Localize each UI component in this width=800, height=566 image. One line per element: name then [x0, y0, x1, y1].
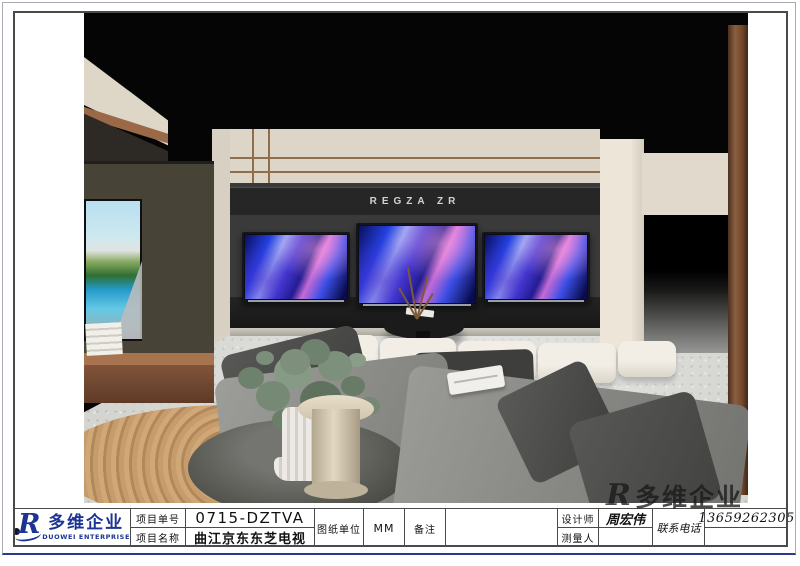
project-name-label: 项目名称: [131, 528, 185, 547]
surveyor-label: 测量人: [558, 528, 598, 547]
company-logo: R 多维企业 DUOWEI ENTERPRISE: [13, 509, 130, 547]
phone-empty-cell: [705, 528, 788, 547]
project-value-column: 0715-DZTVA 曲江京东东芝电视: [185, 509, 314, 547]
wall-trim-line: [230, 157, 600, 159]
drawing-unit-label-cell: 图纸单位: [314, 509, 363, 547]
phone-value-column: 13659262305: [704, 509, 788, 547]
tv-demo-image: [245, 235, 347, 299]
branch: [416, 276, 429, 319]
project-no-value: 0715-DZTVA: [186, 509, 314, 528]
logo-company-name-cn: 多维企业: [48, 515, 124, 532]
back-wall-upper: [230, 129, 600, 189]
drawing-sheet: { "page": { "accent_blue": "#2b3990", "f…: [0, 0, 800, 566]
dark-doorway: [644, 215, 732, 353]
remark-value-cell: [445, 509, 557, 547]
book-stack: [85, 322, 123, 356]
eucalyptus-foliage: [280, 349, 310, 375]
logo-text: 多维企业 DUOWEI ENTERPRISE: [42, 515, 130, 541]
wood-console-front: [84, 365, 214, 403]
logo-company-name-en: DUOWEI ENTERPRISE: [42, 534, 130, 541]
phone-label-cell: 联系电话: [652, 509, 704, 547]
designer-label: 设计师: [558, 509, 598, 528]
travertine-table-foot: [304, 481, 368, 499]
logo-r-emblem-icon: R: [13, 513, 39, 543]
wall-trim-line: [252, 129, 254, 189]
right-pillar: [600, 139, 644, 351]
drawing-unit-label: 图纸单位: [315, 509, 363, 547]
corner-wall: [212, 129, 230, 346]
phone-label: 联系电话: [653, 509, 704, 547]
wall-trim-line: [230, 171, 600, 173]
people-value-column: 周宏伟: [598, 509, 652, 547]
regza-sign-band: REGZA ZR: [230, 187, 600, 215]
regza-sign-text: REGZA ZR: [370, 196, 461, 207]
drawing-unit-value: MM: [364, 509, 404, 547]
project-no-label: 项目单号: [131, 509, 185, 528]
surveyor-value: [599, 528, 652, 547]
remark-label-cell: 备注: [404, 509, 445, 547]
white-ottoman-module: [618, 341, 676, 377]
remark-label: 备注: [405, 509, 445, 547]
company-watermark: R 多维企业: [606, 478, 786, 514]
wall-trim-line: [268, 129, 270, 189]
tv-demo-image: [485, 235, 587, 299]
drawing-unit-value-cell: MM: [363, 509, 404, 547]
tv-screen-right: [482, 232, 590, 302]
project-name-value: 曲江京东东芝电视: [186, 528, 314, 547]
showroom-render: REGZA ZR: [84, 11, 748, 503]
project-label-column: 项目单号 项目名称: [130, 509, 185, 547]
watermark-company-name: 多维企业: [635, 478, 743, 514]
remark-value: [446, 509, 557, 547]
people-label-column: 设计师 测量人: [557, 509, 598, 547]
doorway-header: [642, 153, 732, 215]
watermark-r-emblem-icon: R: [606, 481, 631, 511]
dried-branches: [402, 263, 432, 319]
tv-screen-left: [242, 232, 350, 302]
